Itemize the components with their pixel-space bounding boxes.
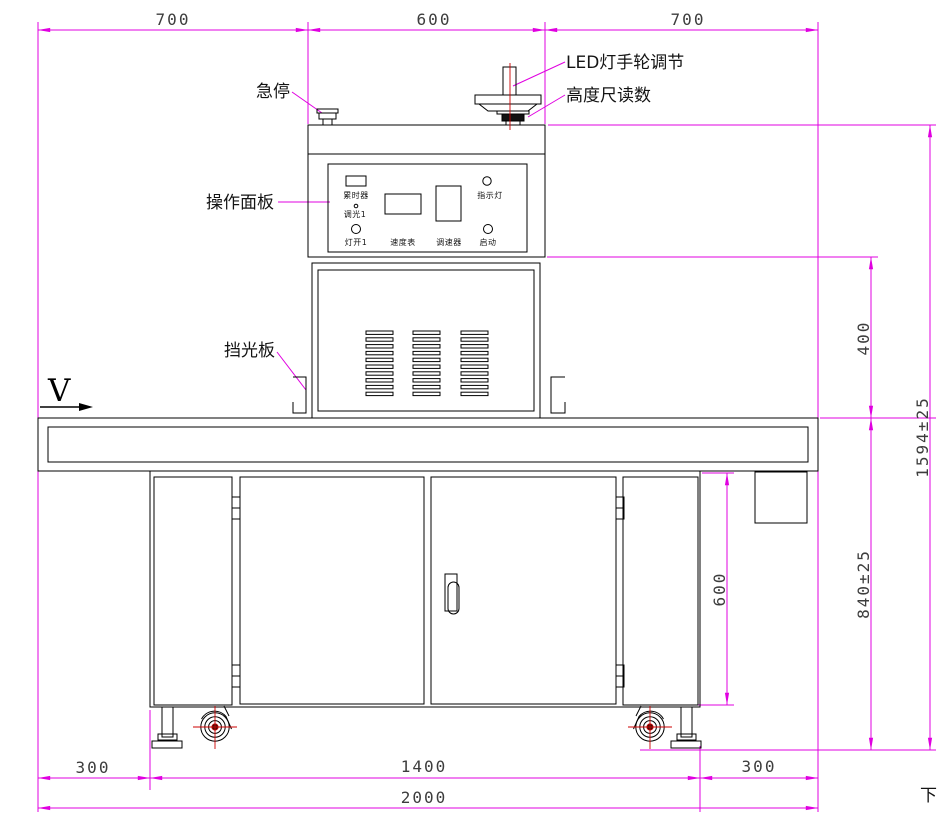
foot-pad: [152, 741, 182, 748]
operation-panel-label: 操作面板: [206, 193, 274, 213]
leveling-foot-left: [152, 707, 182, 748]
foot-stem: [681, 707, 692, 737]
height-gauge-label: 高度尺读数: [566, 86, 651, 106]
dimension-texts: 700 600 700 400 1594±25 840±25 600 300 1…: [76, 10, 932, 807]
light-shield-left: [293, 377, 306, 413]
hinge: [232, 497, 240, 508]
dim-text-table-height: 840±25: [854, 549, 873, 619]
dimmer1-label: 调光1: [344, 209, 367, 219]
left-door: [240, 477, 424, 704]
speed-meter-display: [385, 194, 421, 214]
hinge: [232, 508, 240, 519]
light-shield-right: [551, 377, 565, 413]
dim-text-top-right: 700: [671, 10, 706, 29]
dim-text-bottom-middle: 1400: [401, 757, 448, 776]
motor-box: [755, 472, 807, 523]
indicator-lamp-label: 指示灯: [477, 190, 503, 200]
light-shield-label: 挡光板: [224, 341, 275, 361]
leader-height-gauge: [528, 95, 565, 117]
lamp-housing-outer: [312, 263, 540, 418]
speed-controller-label: 调速器: [436, 238, 462, 247]
cabinet-right-panel: [623, 477, 698, 705]
table-outer: [38, 418, 818, 471]
dim-text-total-height: 1594±25: [913, 396, 932, 477]
start-button: [484, 225, 493, 234]
louver-vents: [366, 331, 488, 396]
speed-meter-label: 速度表: [390, 237, 416, 247]
timer-display: [346, 176, 366, 186]
leader-light-shield: [277, 352, 306, 390]
emergency-stop-label: 急停: [256, 82, 290, 102]
dim-text-bottom-total: 2000: [401, 788, 448, 807]
control-panel: 累时器 调光1 灯开1 速度表 调速器 指示灯 启动: [328, 164, 527, 252]
caster-wheel-right: [628, 706, 672, 749]
dimmer1-led: [354, 204, 358, 208]
speed-controller-knob: [436, 186, 461, 221]
door-handle: [445, 574, 459, 614]
cabinet: [150, 471, 700, 707]
dim-text-bottom-left: 300: [76, 758, 111, 777]
foot-stem: [162, 707, 173, 737]
estop-flange: [317, 109, 338, 113]
foot-pad: [671, 741, 701, 748]
handwheel-assembly: [475, 63, 541, 130]
page-marker: 下: [920, 786, 937, 806]
lamp-on1-label: 灯开1: [345, 237, 368, 247]
lamp-on1-button: [352, 225, 361, 234]
estop-cap: [319, 113, 336, 119]
direction-arrow: V: [40, 373, 93, 411]
lamp-housing: [312, 263, 540, 418]
dim-text-cabinet-height: 600: [710, 572, 729, 607]
machine-drawing: 累时器 调光1 灯开1 速度表 调速器 指示灯 启动: [0, 0, 944, 834]
leader-led-handwheel: [513, 62, 565, 86]
handwheel-handle: [503, 67, 516, 95]
indicator-lamp: [483, 177, 491, 185]
conveyor-table: [38, 418, 818, 471]
timer-label: 累时器: [343, 190, 369, 200]
handwheel-disc: [475, 95, 541, 104]
louver-column-3: [461, 331, 488, 396]
dim-text-lamp-height: 400: [854, 321, 873, 356]
louver-column-2: [413, 331, 440, 396]
table-belt: [48, 427, 808, 462]
height-gauge-block: [502, 114, 524, 121]
hinge: [232, 676, 240, 687]
led-handwheel-label: LED灯手轮调节: [566, 53, 684, 73]
direction-arrow-head: [79, 403, 93, 411]
lamp-housing-inner: [318, 270, 534, 411]
machine: 累时器 调光1 灯开1 速度表 调速器 指示灯 启动: [38, 63, 818, 749]
caster-wheel-left: [193, 706, 237, 749]
callout-labels: 急停 操作面板 挡光板 LED灯手轮调节 高度尺读数 下: [206, 53, 937, 806]
hinge: [232, 665, 240, 676]
extension-lines: [38, 22, 936, 812]
gauge-base: [506, 121, 520, 125]
handle-plate: [445, 574, 457, 611]
cabinet-left-panel: [154, 477, 232, 705]
dimension-lines: [38, 30, 930, 808]
dim-text-bottom-right: 300: [742, 757, 777, 776]
louver-column-1: [366, 331, 393, 396]
dim-text-top-left: 700: [156, 10, 191, 29]
direction-letter: V: [47, 373, 71, 409]
dim-text-top-middle: 600: [417, 10, 452, 29]
start-label: 启动: [480, 237, 497, 247]
leveling-foot-right: [671, 707, 701, 748]
handwheel-cone: [479, 104, 537, 111]
estop-stem: [323, 119, 332, 125]
